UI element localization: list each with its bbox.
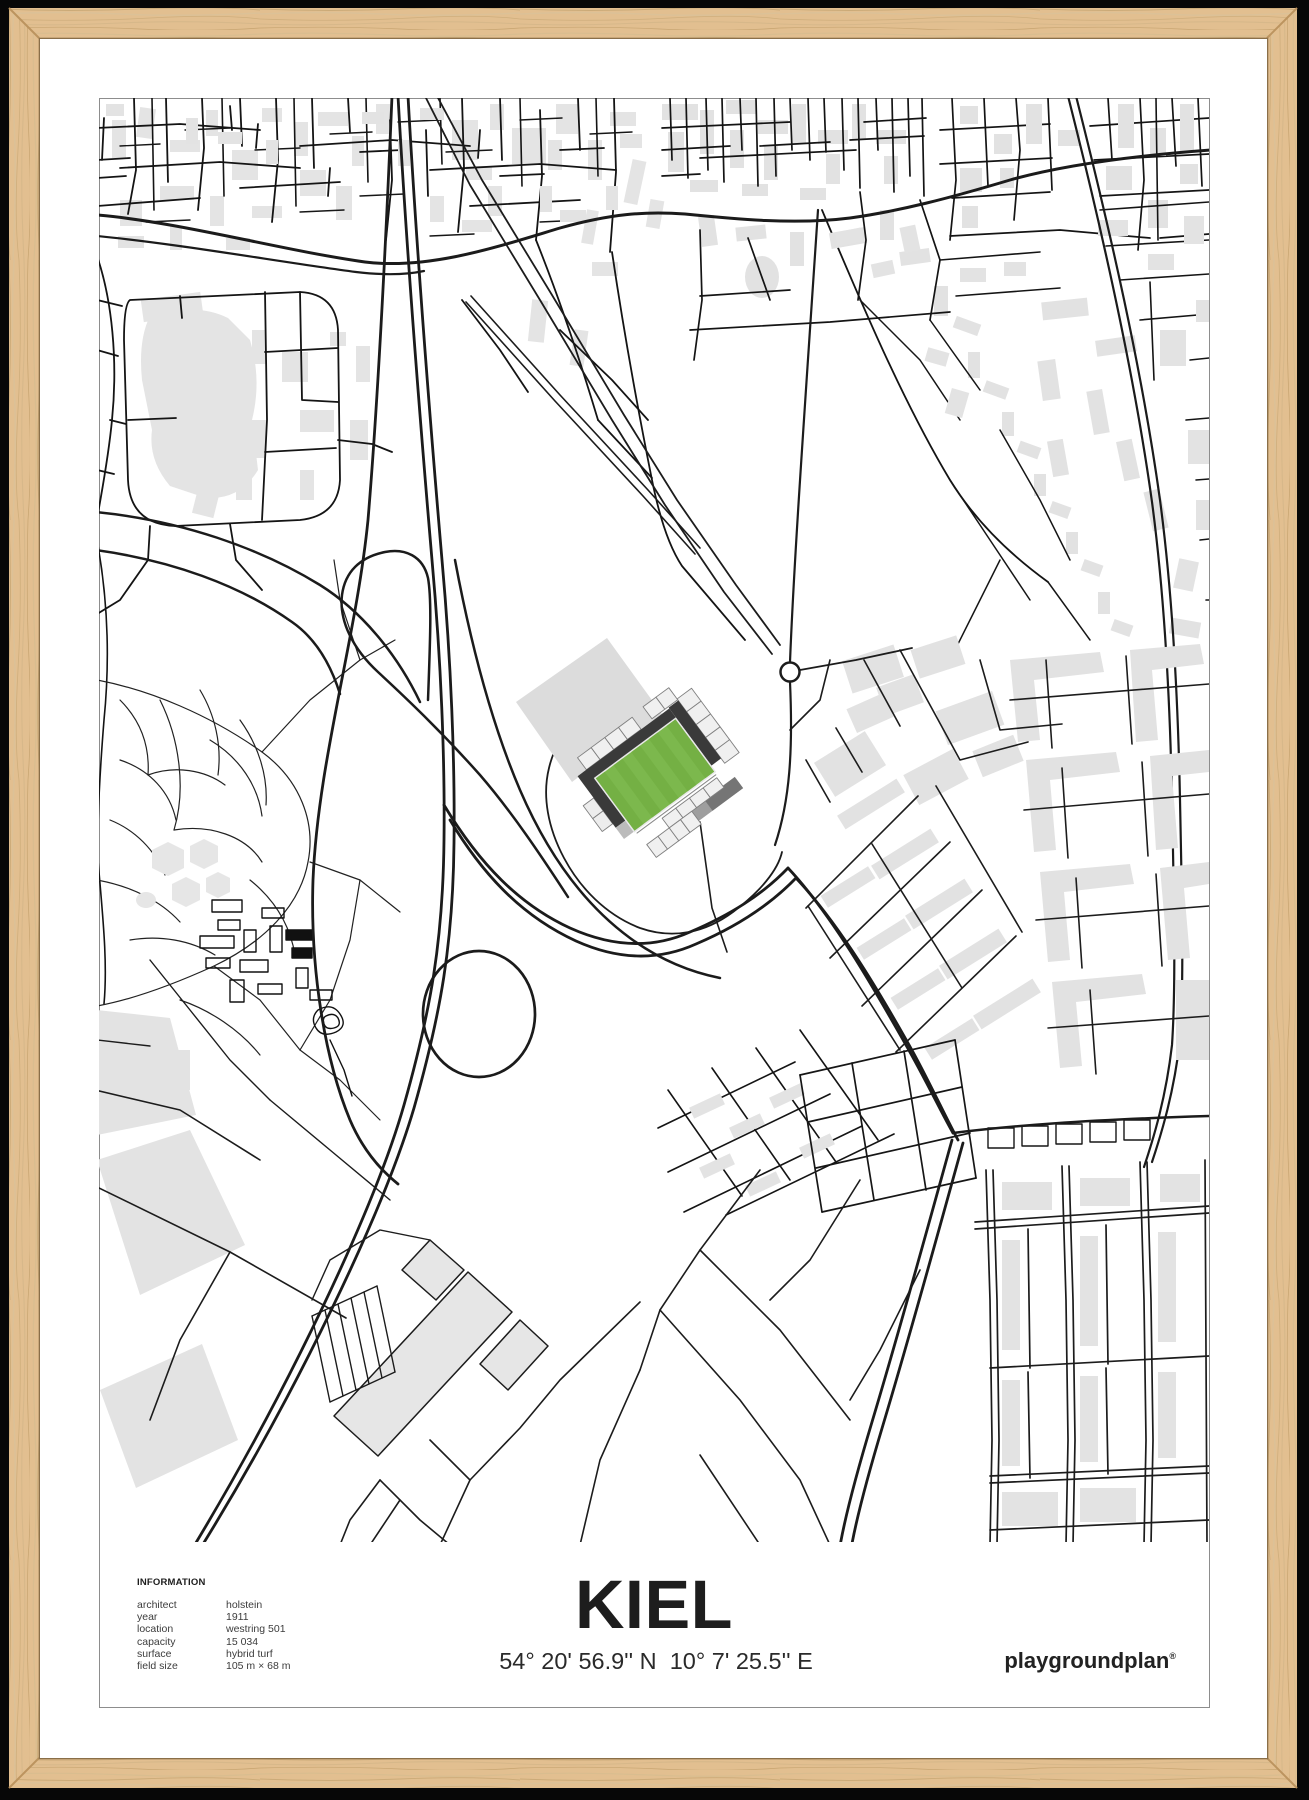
svg-text:15 034: 15 034 xyxy=(226,1636,258,1648)
svg-text:architect: architect xyxy=(137,1599,177,1611)
svg-text:surface: surface xyxy=(137,1648,172,1660)
svg-text:105 m × 68 m: 105 m × 68 m xyxy=(226,1660,291,1672)
svg-text:location: location xyxy=(137,1623,173,1635)
svg-text:holstein: holstein xyxy=(226,1599,262,1611)
svg-text:westring 501: westring 501 xyxy=(225,1623,286,1635)
svg-text:KIEL: KIEL xyxy=(575,1566,733,1643)
svg-text:field size: field size xyxy=(137,1660,178,1672)
svg-text:capacity: capacity xyxy=(137,1636,176,1648)
svg-text:54° 20' 56.9'' N 10° 7' 25.5': 54° 20' 56.9'' N 10° 7' 25.5'' E xyxy=(499,1648,813,1674)
svg-text:INFORMATION: INFORMATION xyxy=(137,1577,206,1588)
svg-text:playgroundplan®: playgroundplan® xyxy=(1004,1648,1176,1673)
svg-text:hybrid turf: hybrid turf xyxy=(226,1648,273,1660)
svg-text:year: year xyxy=(137,1611,158,1623)
svg-text:1911: 1911 xyxy=(226,1611,249,1623)
